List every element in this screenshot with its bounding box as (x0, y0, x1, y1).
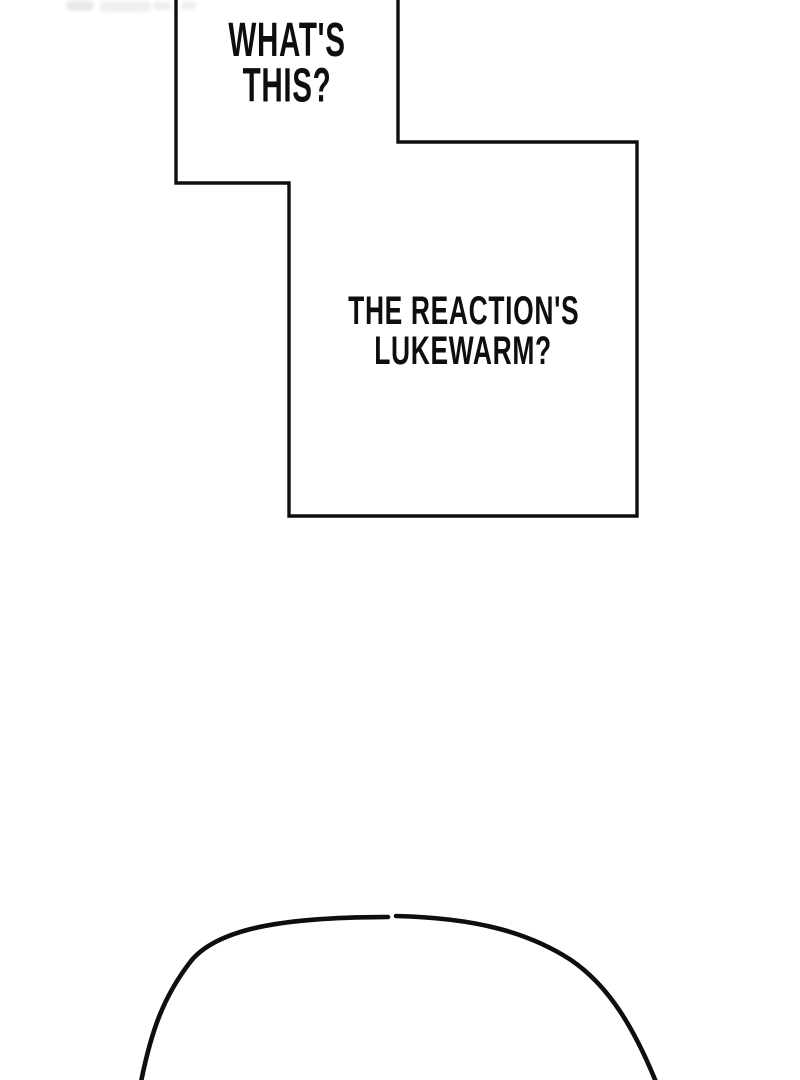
panel-artwork (0, 0, 800, 1080)
smudge-artifact (99, 1, 151, 12)
speech-line: WHAT'S (217, 16, 357, 62)
head-outline-left (141, 917, 388, 1080)
smudge-artifact (153, 2, 171, 10)
speech-line: THE REACTION'S (348, 291, 578, 331)
speech-bubble-2-text: THE REACTION'S LUKEWARM? (348, 291, 578, 371)
comic-panel: WHAT'S THIS? THE REACTION'S LUKEWARM? (0, 0, 800, 1080)
speech-bubble-1-text: WHAT'S THIS? (217, 16, 357, 108)
speech-line: THIS? (217, 62, 357, 108)
smudge-artifact (66, 1, 94, 11)
speech-line: LUKEWARM? (348, 331, 578, 371)
smudge-artifact (181, 1, 197, 10)
head-outline-right (396, 916, 656, 1080)
